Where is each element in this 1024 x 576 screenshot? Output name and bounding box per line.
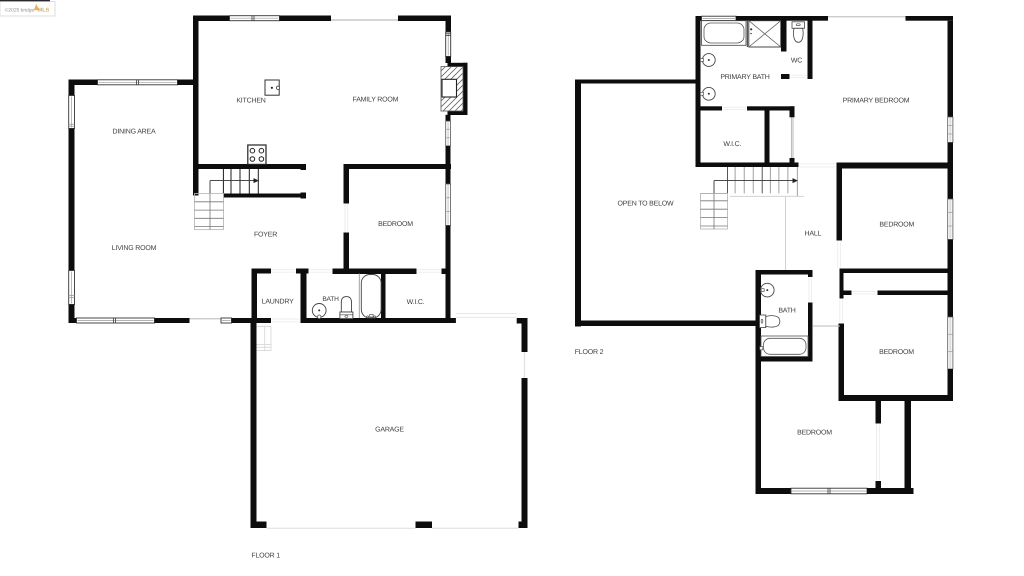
svg-text:W.I.C.: W.I.C. — [407, 299, 425, 306]
svg-text:BEDROOM: BEDROOM — [378, 221, 413, 228]
svg-text:FLOOR 2: FLOOR 2 — [575, 349, 604, 356]
svg-text:PRIMARY BEDROOM: PRIMARY BEDROOM — [843, 97, 910, 104]
svg-text:KITCHEN: KITCHEN — [236, 98, 265, 105]
svg-text:DINING AREA: DINING AREA — [113, 129, 156, 136]
svg-text:BATH: BATH — [322, 296, 339, 303]
svg-text:©2025 bridge: ©2025 bridge — [5, 7, 35, 13]
svg-text:BEDROOM: BEDROOM — [797, 430, 832, 437]
svg-text:FAMILY ROOM: FAMILY ROOM — [353, 97, 399, 104]
svg-text:LIVING ROOM: LIVING ROOM — [112, 245, 157, 252]
svg-text:BEDROOM: BEDROOM — [879, 349, 914, 356]
svg-text:LAUNDRY: LAUNDRY — [262, 299, 294, 306]
svg-text:BATH: BATH — [778, 308, 795, 315]
svg-text:HALL: HALL — [805, 231, 822, 238]
svg-text:W.I.C.: W.I.C. — [723, 141, 741, 148]
svg-text:MLS: MLS — [38, 7, 50, 13]
svg-text:BEDROOM: BEDROOM — [879, 221, 914, 228]
svg-text:FLOOR 1: FLOOR 1 — [251, 552, 280, 559]
svg-text:OPEN TO BELOW: OPEN TO BELOW — [618, 201, 674, 208]
svg-text:FOYER: FOYER — [254, 232, 277, 239]
svg-text:PRIMARY BATH: PRIMARY BATH — [720, 74, 769, 81]
svg-text:WC: WC — [791, 58, 802, 65]
svg-text:GARAGE: GARAGE — [375, 427, 404, 434]
